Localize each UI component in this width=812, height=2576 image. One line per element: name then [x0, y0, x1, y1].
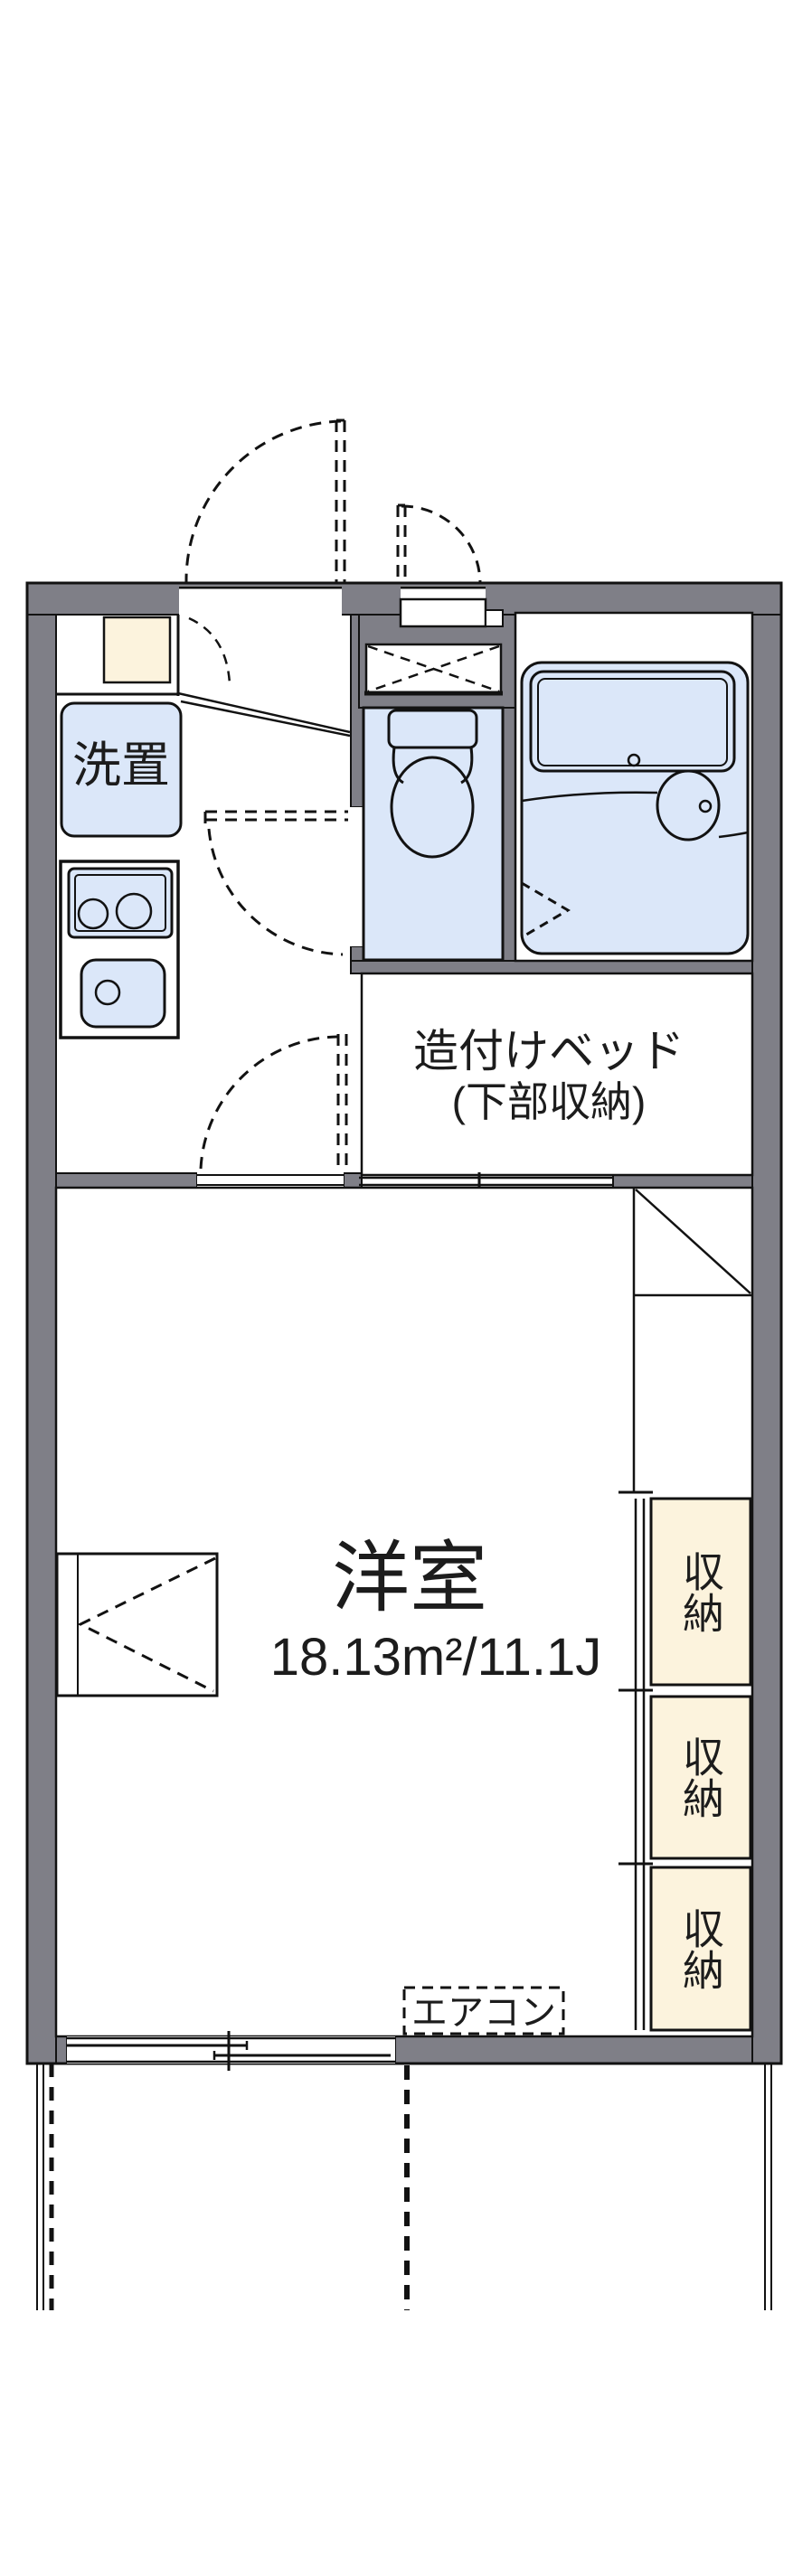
genkan-step-line-1: [178, 693, 350, 732]
bed-label-line2: (下部収納): [452, 1078, 647, 1125]
wall-bottom: [395, 2036, 752, 2064]
entrance-inner-swing-arc: [189, 618, 230, 684]
entrance-door-swing: [186, 420, 345, 582]
window-opening: [67, 2036, 395, 2064]
toilet-tank: [389, 710, 477, 747]
air-conditioner: エアコン: [404, 1988, 563, 2034]
bathtub: [531, 672, 734, 771]
genkan-step-line-2: [181, 701, 350, 736]
toilet-door-swing: [205, 812, 348, 954]
laundry-label: 洗置: [72, 738, 170, 793]
main-room-size: 18.13m²/11.1J: [270, 1628, 601, 1687]
utility-porch-step: [401, 599, 486, 626]
storage-label-2: 収納: [677, 1735, 724, 1819]
balcony: [37, 2064, 771, 2310]
floor-plan-canvas: 洗置: [0, 0, 812, 2576]
aircon-label: エアコン: [411, 1993, 556, 2033]
floor-plan-page: 洗置: [0, 0, 812, 2576]
wall-window-cap: [56, 2035, 67, 2064]
main-room-name: 洋室: [332, 1535, 487, 1622]
utility-door-swing: [398, 505, 480, 583]
room-door-opening: [197, 1171, 344, 1189]
wall-divider-left: [56, 1173, 197, 1188]
utility-porch-notch: [486, 610, 503, 626]
wall-right: [752, 615, 781, 2064]
kitchen-sink: [81, 960, 165, 1027]
folding-desk: [57, 1554, 217, 1696]
bathroom: [515, 613, 752, 961]
wall-toilet-bath-divider: [503, 708, 515, 961]
bed-label-line1: 造付けベッド: [413, 1026, 685, 1076]
shoe-cabinet: [104, 617, 170, 682]
built-in-bed-area: 造付けベッド (下部収納): [359, 973, 752, 1190]
kitchen: [61, 861, 178, 1038]
storage-label-3: 収納: [677, 1907, 724, 1990]
toilet-bowl: [392, 757, 473, 857]
storage-label-1: 収納: [677, 1550, 724, 1633]
laundry-area: 洗置: [56, 615, 181, 836]
main-room-door-swing: [201, 1034, 346, 1171]
entrance-opening: [179, 586, 342, 616]
wall-bed-top: [351, 961, 752, 973]
entrance-area: [105, 420, 503, 736]
wall-left: [27, 615, 56, 2064]
